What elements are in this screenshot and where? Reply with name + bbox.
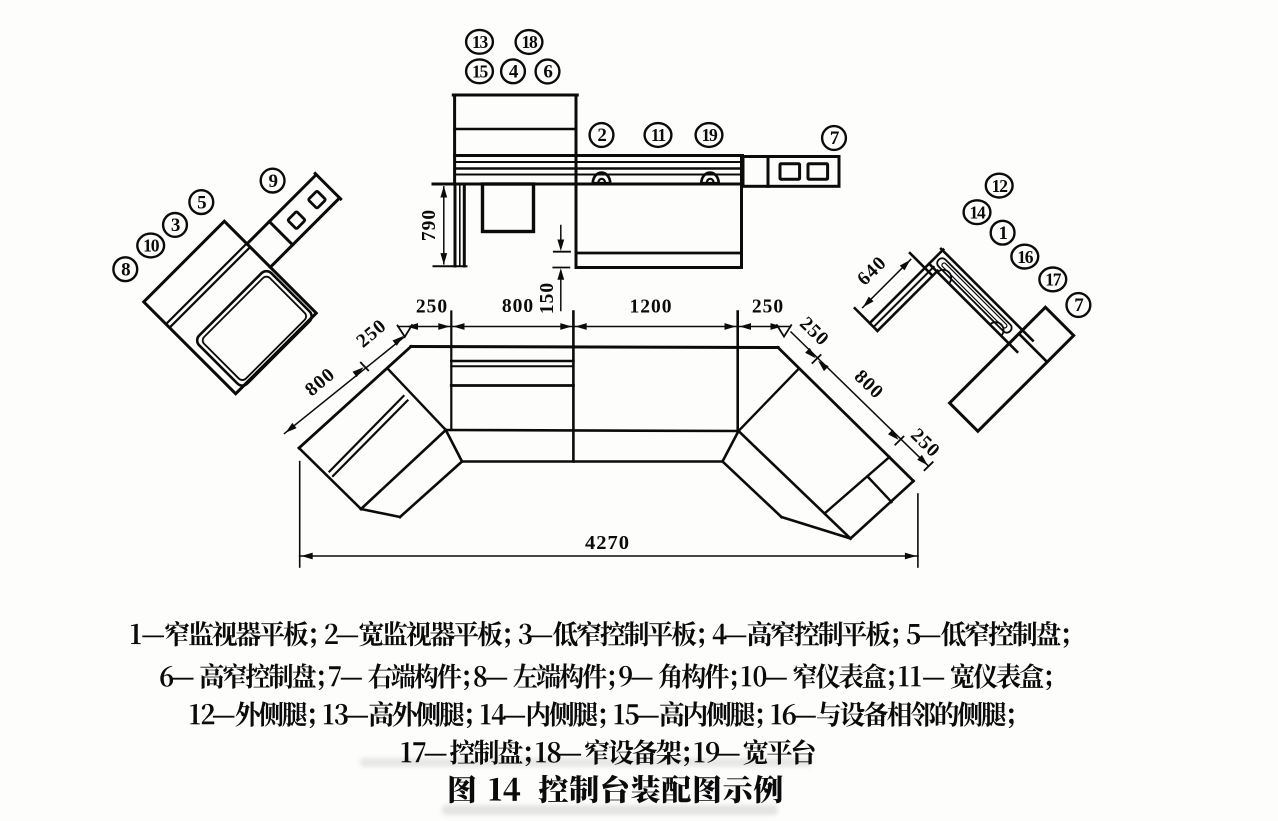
svg-text:10: 10 [143,236,160,256]
svg-text:16: 16 [1017,247,1034,267]
svg-text:18: 18 [521,32,538,52]
svg-text:14: 14 [969,202,986,222]
svg-text:250: 250 [353,315,391,352]
svg-text:250: 250 [906,425,944,463]
svg-text:250: 250 [795,313,833,351]
svg-text:2: 2 [597,125,606,146]
svg-text:4270: 4270 [585,532,630,554]
svg-text:11: 11 [651,125,666,145]
svg-text:1200: 1200 [630,297,673,318]
svg-text:150: 150 [537,282,558,314]
svg-text:800: 800 [301,364,339,401]
svg-text:4: 4 [509,62,519,83]
svg-text:1: 1 [998,223,1007,244]
svg-text:19: 19 [701,125,718,145]
svg-text:8: 8 [121,259,130,280]
svg-text:9: 9 [268,171,277,192]
svg-text:250: 250 [416,297,448,318]
svg-text:3: 3 [171,215,180,236]
svg-text:17: 17 [1045,270,1062,290]
svg-text:790: 790 [419,209,440,241]
svg-text:5: 5 [197,192,206,213]
svg-text:7: 7 [830,128,840,149]
svg-text:7: 7 [1074,295,1084,316]
svg-text:13: 13 [472,32,489,52]
svg-text:15: 15 [472,62,489,82]
svg-text:6: 6 [543,62,552,83]
svg-text:800: 800 [502,296,534,317]
svg-text:12: 12 [992,176,1008,196]
svg-text:250: 250 [752,297,784,318]
svg-text:800: 800 [850,366,888,404]
